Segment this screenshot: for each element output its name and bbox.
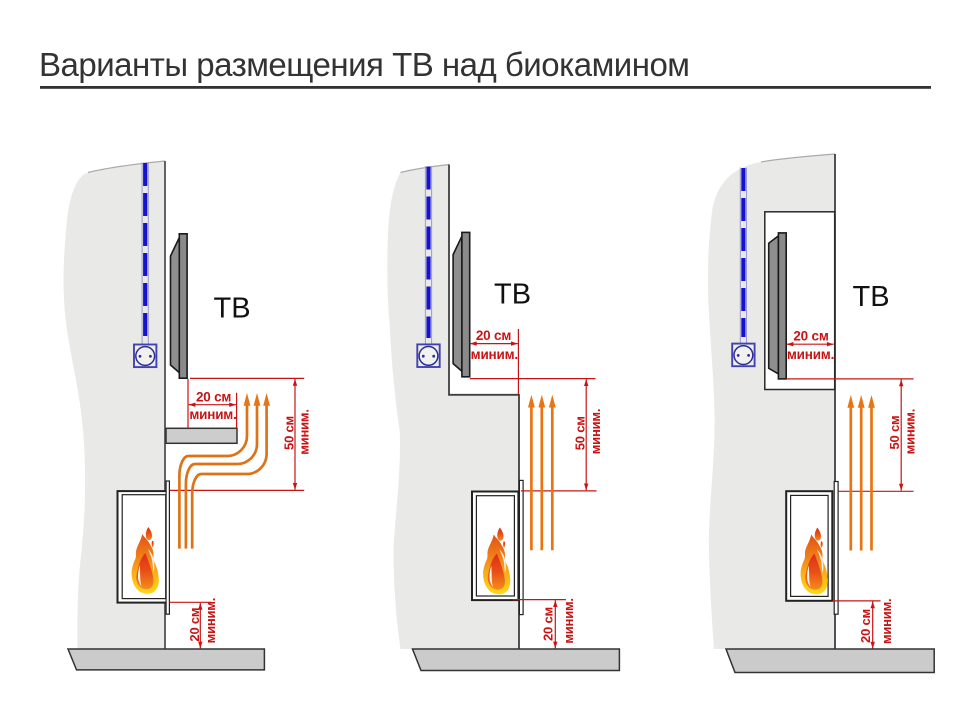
svg-text:ТВ: ТВ (853, 281, 890, 313)
svg-text:миним.: миним. (561, 598, 576, 643)
svg-text:50 см: 50 см (573, 416, 588, 450)
svg-text:20 см: 20 см (540, 607, 555, 641)
svg-text:20 см: 20 см (476, 328, 511, 343)
svg-text:20 см: 20 см (187, 608, 202, 642)
svg-text:миним.: миним. (203, 598, 218, 643)
svg-text:50 см: 50 см (887, 416, 902, 450)
svg-text:миним.: миним. (903, 409, 918, 454)
svg-text:миним.: миним. (787, 347, 834, 362)
svg-text:миним.: миним. (297, 409, 312, 454)
svg-text:миним.: миним. (189, 407, 236, 422)
svg-text:20 см: 20 см (793, 328, 828, 343)
svg-text:20 см: 20 см (858, 609, 873, 643)
svg-text:ТВ: ТВ (494, 279, 531, 311)
svg-text:миним.: миним. (588, 409, 603, 454)
svg-text:Варианты размещения ТВ над био: Варианты размещения ТВ над биокамином (39, 46, 690, 83)
svg-text:20 см: 20 см (196, 389, 231, 404)
svg-text:миним.: миним. (471, 347, 518, 362)
svg-text:миним.: миним. (879, 599, 894, 644)
svg-text:50 см: 50 см (281, 416, 296, 450)
svg-text:ТВ: ТВ (214, 293, 251, 325)
